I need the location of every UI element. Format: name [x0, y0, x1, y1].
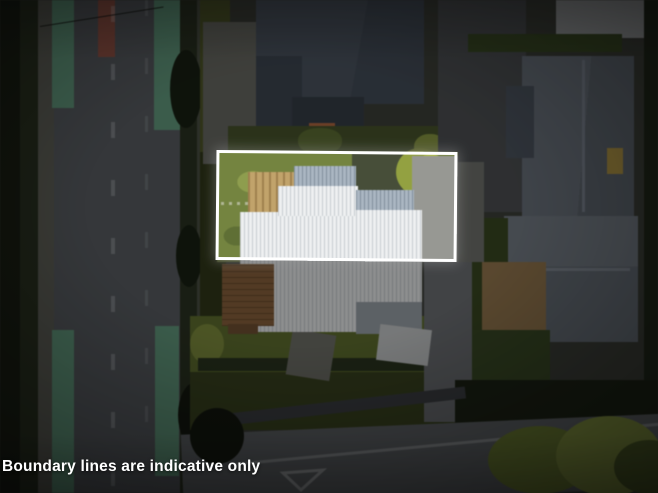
- street-tree: [190, 408, 244, 464]
- bare-dirt-patch: [482, 262, 546, 334]
- shared-driveway: [458, 162, 484, 262]
- lit-skylight: [607, 148, 623, 174]
- street-tree: [170, 50, 202, 128]
- cycle-lane-bottom-right: [155, 326, 179, 476]
- neighbour-house-wing: [506, 86, 534, 158]
- treeline-left: [0, 0, 20, 493]
- aerial-photo: Boundary lines are indicative only: [0, 0, 658, 493]
- garden-shed: [376, 324, 432, 366]
- timber-deck: [222, 264, 274, 326]
- road-centerline-dashes: [111, 6, 115, 493]
- garden-path: [286, 329, 337, 381]
- roof-ridge: [582, 60, 585, 212]
- give-way-road-marking: [279, 467, 327, 493]
- road-lane-dashes: [145, 0, 148, 430]
- neighbour-flat-roof: [556, 0, 646, 38]
- street-tree: [176, 225, 202, 287]
- property-boundary-outline: [216, 150, 458, 262]
- boundary-disclaimer-text: Boundary lines are indicative only: [2, 458, 260, 476]
- grass-berm-left: [20, 0, 38, 493]
- deck-steps: [228, 324, 258, 334]
- neighbour-house-grey-upper: [522, 56, 634, 218]
- hedge-row: [468, 34, 622, 52]
- lawn-strip: [466, 330, 550, 382]
- cycle-lane-top-left: [52, 0, 74, 108]
